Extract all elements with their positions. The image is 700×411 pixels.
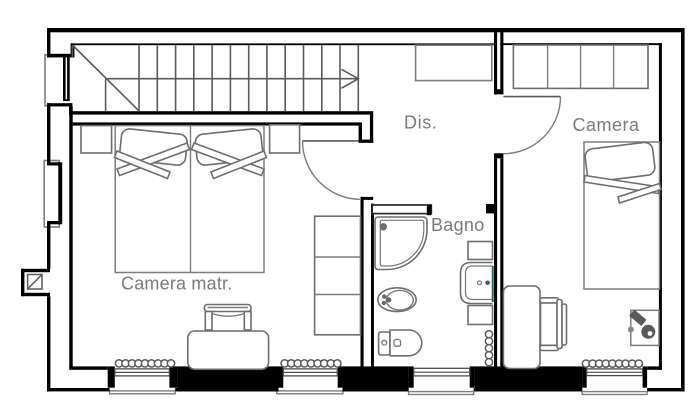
svg-text:Camera matr.: Camera matr. — [121, 274, 232, 294]
svg-text:Dis.: Dis. — [404, 113, 437, 133]
svg-text:Bagno: Bagno — [431, 215, 485, 235]
svg-text:Camera: Camera — [573, 115, 641, 135]
